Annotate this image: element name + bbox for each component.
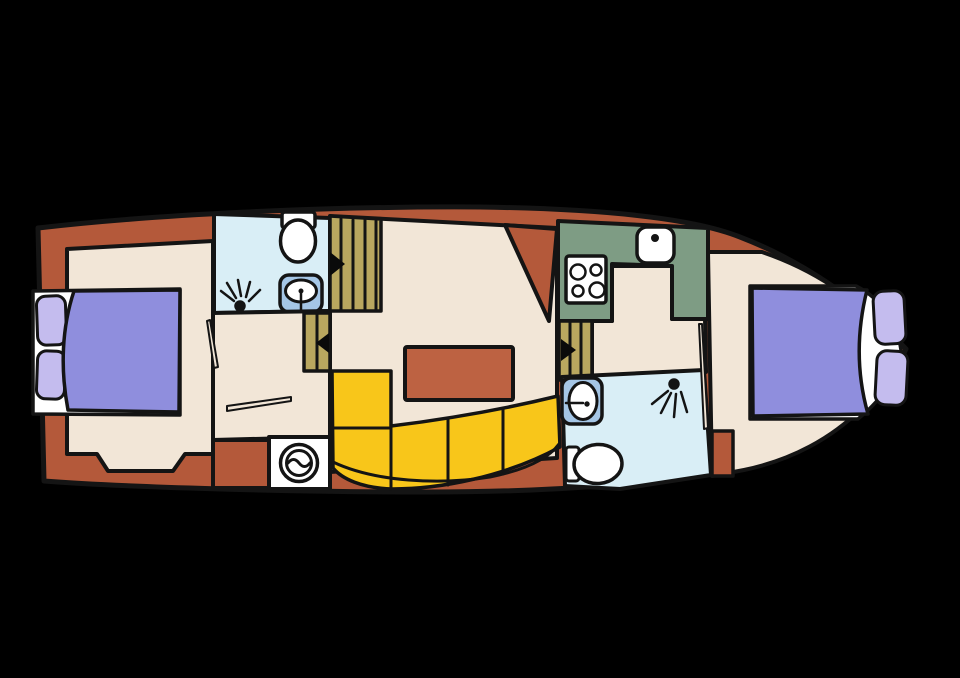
aft-bed-pillow-bottom: [36, 351, 66, 400]
fore-bed-duvet: [752, 288, 868, 416]
aft-toilet-bowl: [281, 220, 316, 262]
washing-machine-icon: [281, 445, 318, 482]
plan-root: [33, 207, 908, 492]
kitchen-sink: [637, 227, 674, 263]
floorplan-svg: [0, 0, 960, 678]
fore-toilet-bowl: [573, 443, 624, 485]
fore-bed-pillow-bottom: [875, 350, 909, 406]
fore-bed-pillow-top: [873, 290, 907, 345]
aft-bed-pillow-top: [36, 295, 67, 345]
boat-floorplan-canvas: [0, 0, 960, 678]
aft-deck-block: [213, 440, 269, 488]
fore-sink-drain: [585, 402, 589, 406]
dinette-table: [405, 347, 513, 400]
kitchen-sink-drain: [652, 235, 659, 242]
fore-sink-basin: [569, 383, 597, 420]
aft-bed-duvet: [63, 290, 180, 412]
fore-deck-block: [712, 431, 733, 476]
